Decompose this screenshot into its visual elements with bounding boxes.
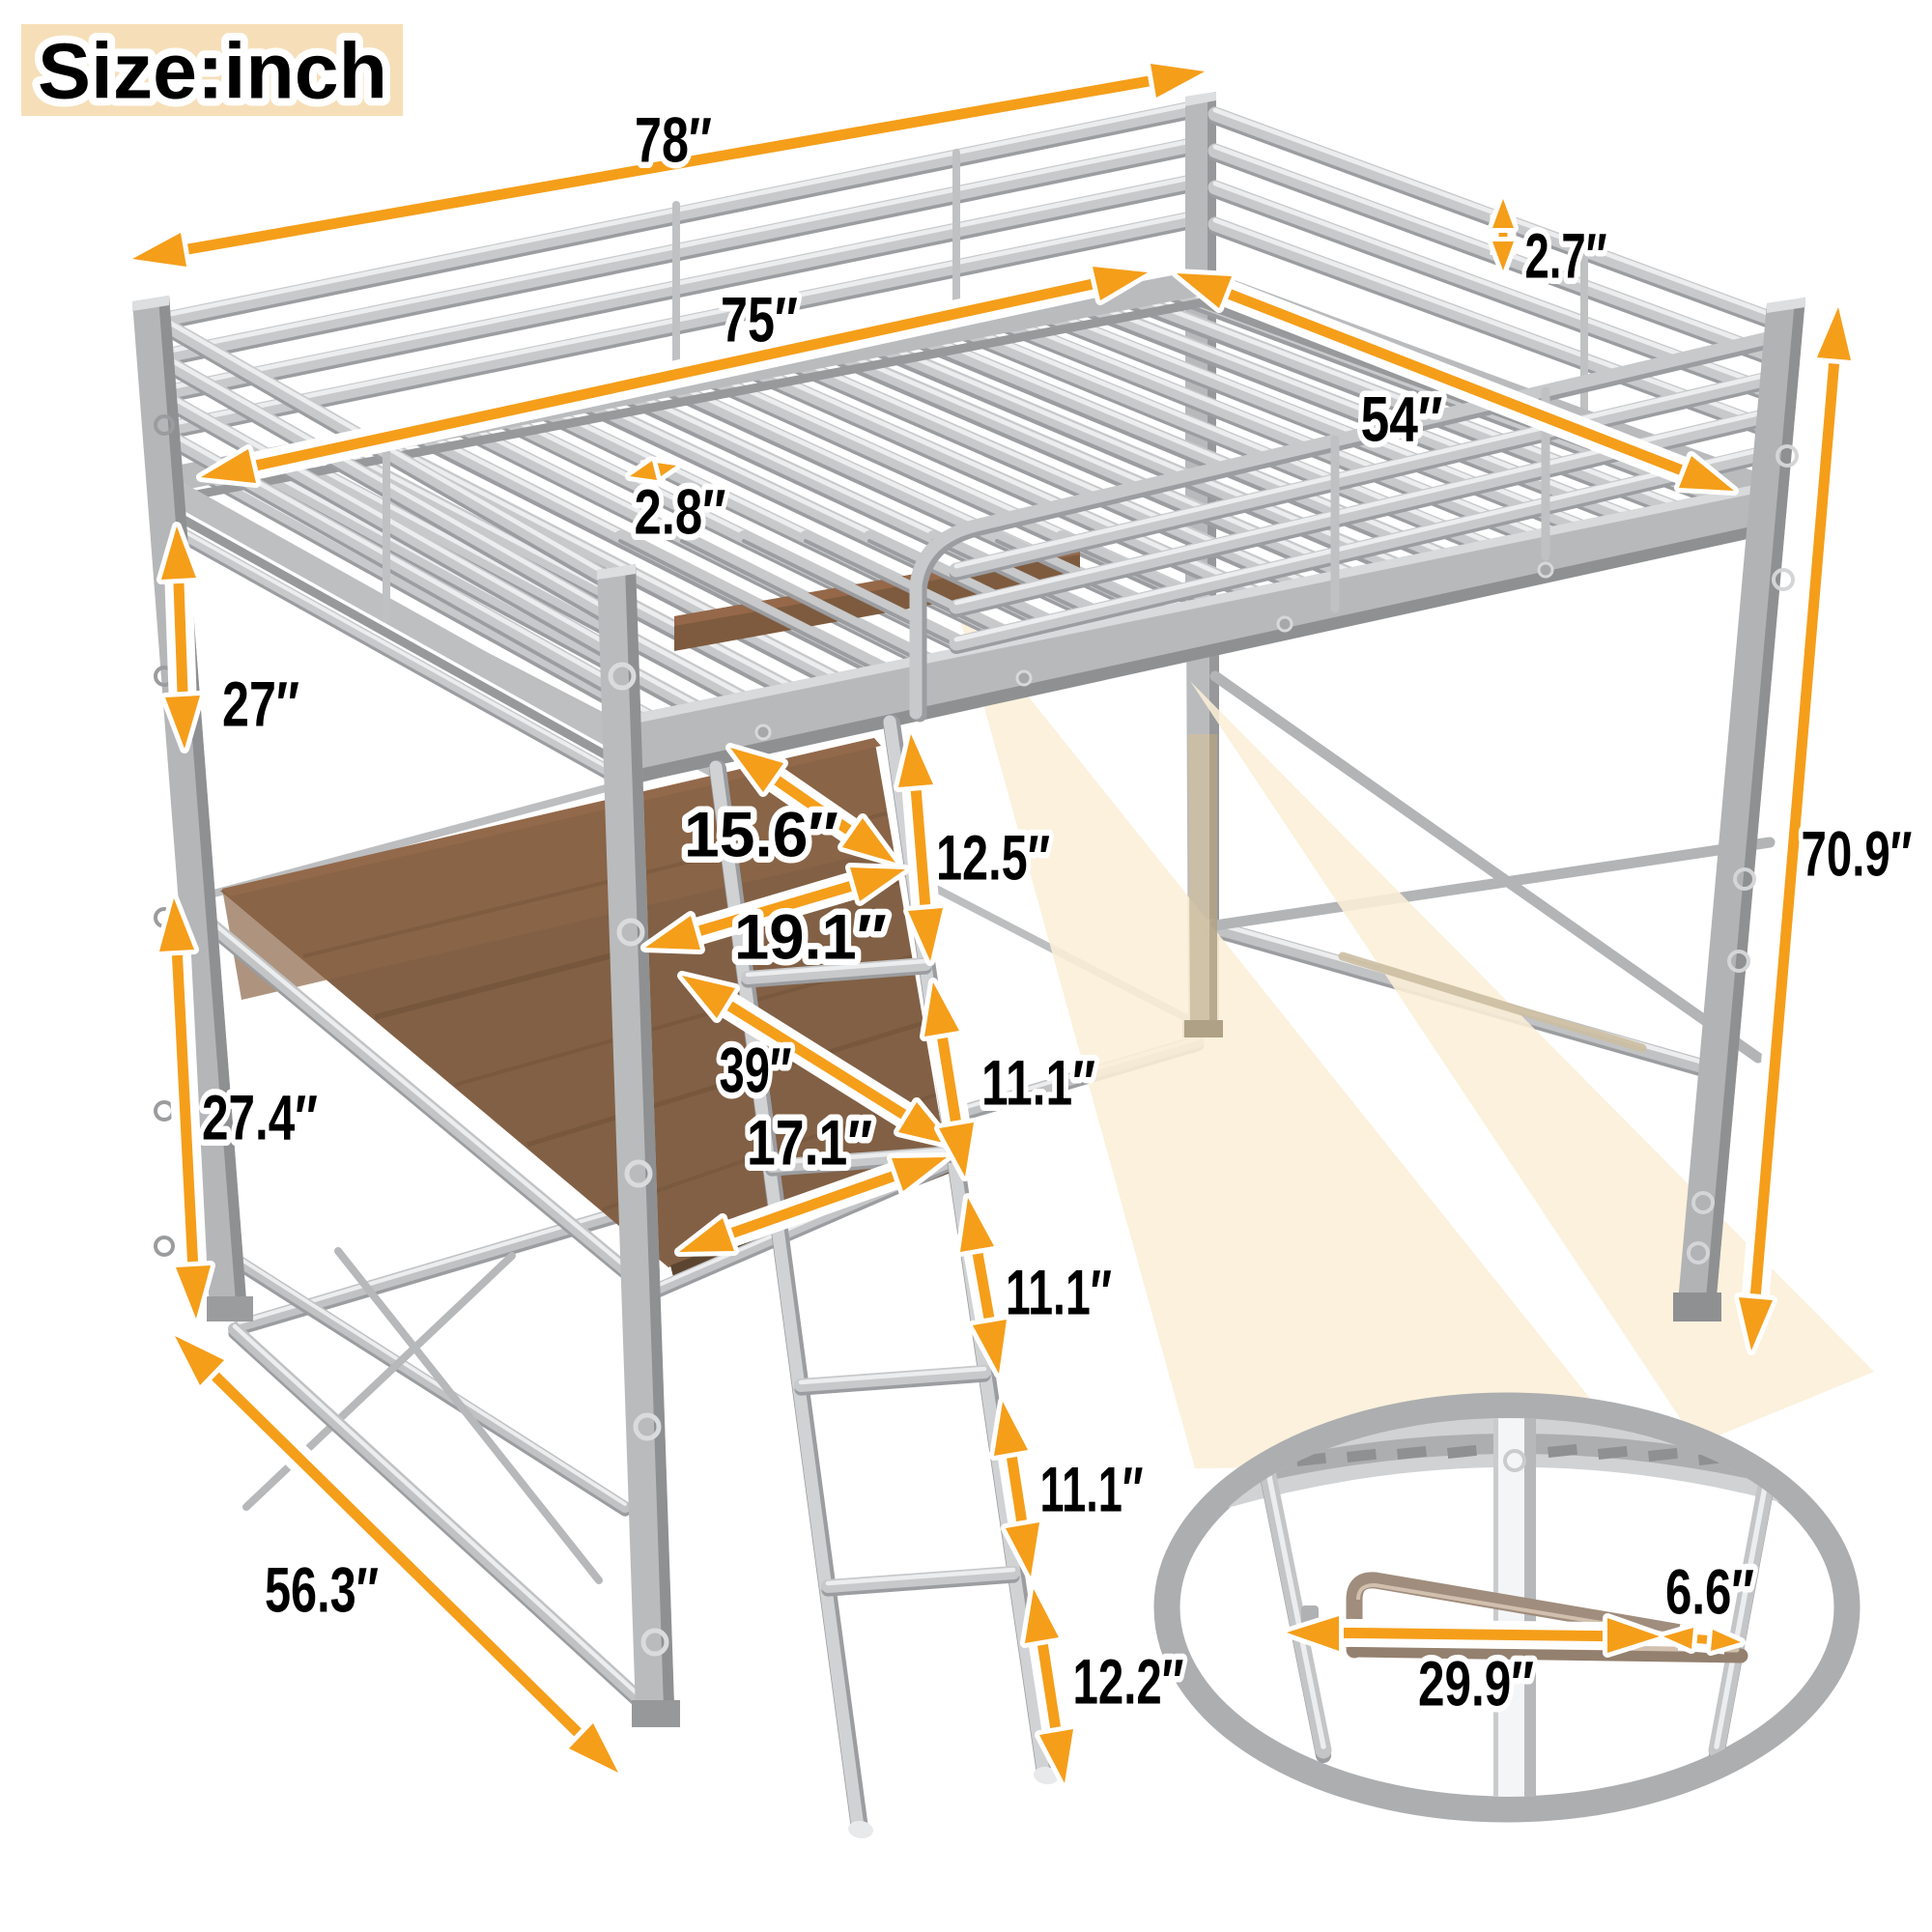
svg-text:17.1″: 17.1″ (747, 1106, 872, 1178)
svg-text:11.1″: 11.1″ (1040, 1453, 1144, 1524)
svg-text:27″: 27″ (222, 668, 299, 739)
svg-text:12.5″: 12.5″ (936, 821, 1050, 893)
svg-text:27.4″: 27.4″ (202, 1081, 318, 1152)
svg-text:6.6″: 6.6″ (1665, 1555, 1754, 1627)
svg-text:78″: 78″ (635, 103, 712, 175)
svg-text:12.2″: 12.2″ (1073, 1645, 1184, 1717)
svg-text:15.6″: 15.6″ (684, 798, 838, 869)
svg-text:70.9″: 70.9″ (1802, 817, 1913, 889)
svg-text:56.3″: 56.3″ (265, 1553, 379, 1625)
svg-text:54″: 54″ (1361, 383, 1443, 454)
svg-text:75″: 75″ (721, 283, 798, 355)
svg-text:2.7″: 2.7″ (1525, 219, 1607, 291)
svg-text:29.9″: 29.9″ (1418, 1647, 1534, 1719)
svg-text:11.1″: 11.1″ (981, 1046, 1095, 1118)
svg-text:2.8″: 2.8″ (635, 475, 726, 547)
svg-text:Size:inch: Size:inch (38, 28, 387, 116)
svg-text:19.1″: 19.1″ (734, 900, 887, 972)
svg-text:39″: 39″ (720, 1034, 792, 1105)
svg-text:11.1″: 11.1″ (1006, 1256, 1112, 1327)
